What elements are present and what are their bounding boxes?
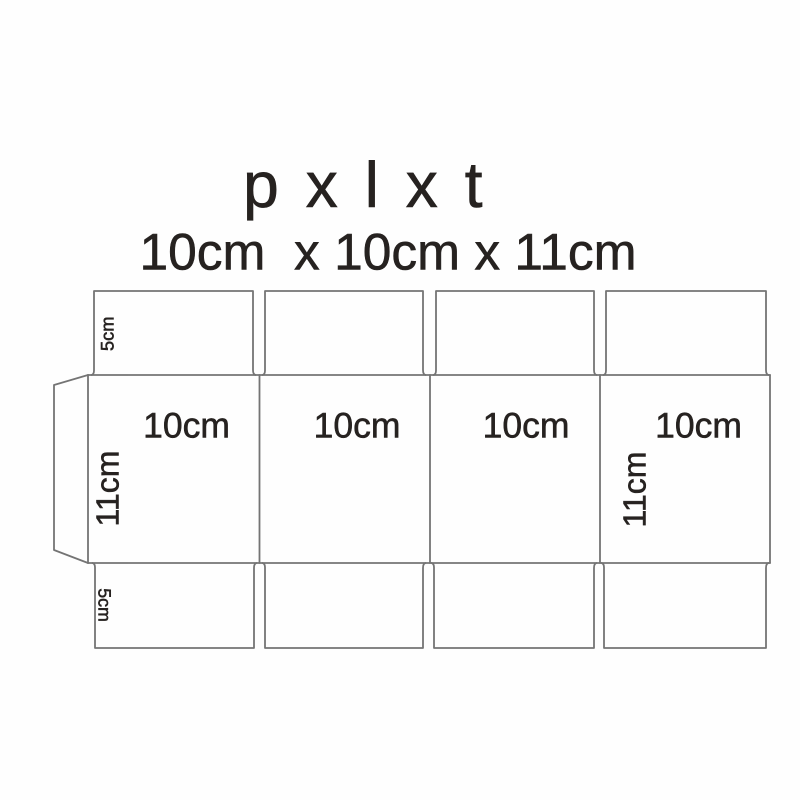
svg-text:10cm: 10cm: [314, 406, 401, 446]
svg-text:10cm: 10cm: [143, 406, 230, 446]
svg-text:5cm: 5cm: [98, 317, 118, 351]
svg-text:10cm: 10cm: [655, 406, 742, 446]
svg-text:p x l x t: p x l x t: [243, 149, 487, 221]
svg-text:5cm: 5cm: [95, 588, 115, 622]
svg-text:10cm: 10cm: [483, 406, 570, 446]
svg-text:11cm: 11cm: [617, 452, 653, 528]
svg-text:10cm x 10cm x 11cm: 10cm x 10cm x 11cm: [139, 223, 636, 281]
svg-text:11cm: 11cm: [90, 451, 126, 527]
